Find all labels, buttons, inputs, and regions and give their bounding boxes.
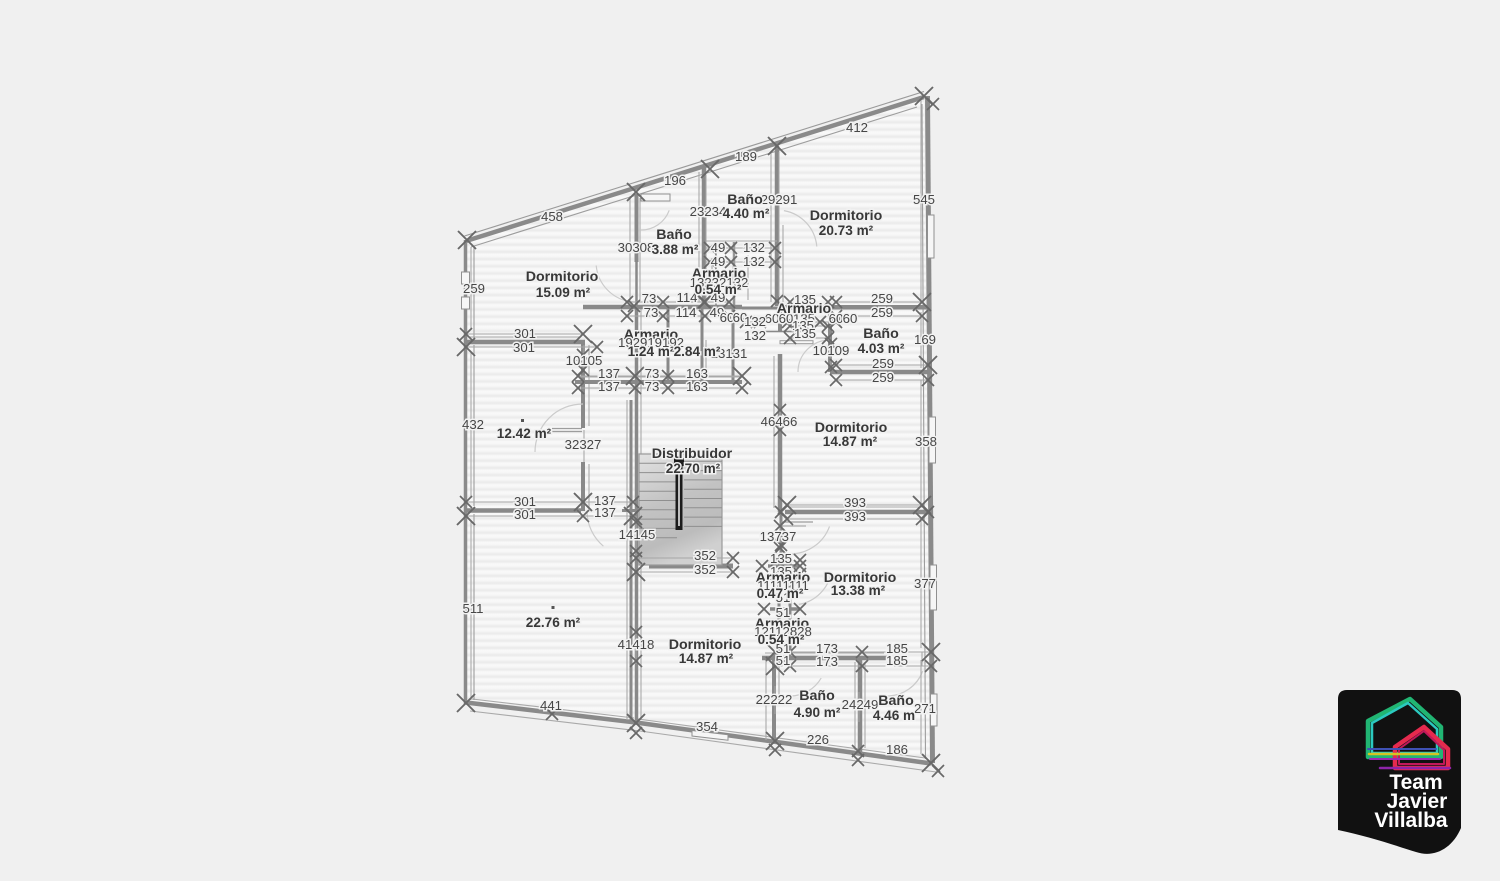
- svg-text:4.46 m: 4.46 m: [873, 708, 915, 723]
- svg-text:226: 226: [807, 732, 829, 747]
- svg-text:259: 259: [871, 305, 893, 320]
- svg-text:511: 511: [462, 601, 483, 616]
- svg-text:Baño: Baño: [863, 326, 899, 342]
- svg-text:259: 259: [872, 356, 894, 371]
- svg-text:354: 354: [696, 719, 718, 734]
- svg-text:352: 352: [694, 562, 716, 577]
- svg-text:432: 432: [462, 417, 484, 432]
- svg-text:458: 458: [541, 209, 563, 224]
- svg-text:22.70 m²: 22.70 m²: [666, 461, 721, 476]
- svg-text:132: 132: [744, 314, 766, 329]
- svg-text:Baño: Baño: [799, 688, 835, 704]
- svg-text:137: 137: [598, 379, 620, 394]
- svg-text:10109: 10109: [813, 343, 850, 358]
- svg-text:393: 393: [844, 495, 866, 510]
- svg-text:2.84 m²: 2.84 m²: [674, 344, 721, 359]
- svg-text:Baño: Baño: [878, 693, 914, 709]
- svg-text:73: 73: [644, 305, 659, 320]
- svg-text:132: 132: [744, 328, 766, 343]
- svg-text:22.76 m²: 22.76 m²: [526, 615, 581, 630]
- svg-text:393: 393: [844, 509, 866, 524]
- svg-text:185: 185: [886, 653, 908, 668]
- svg-text:41418: 41418: [618, 637, 655, 652]
- svg-text:358: 358: [915, 434, 937, 449]
- svg-text:132: 132: [743, 240, 765, 255]
- svg-text:271: 271: [914, 701, 936, 716]
- svg-text:132: 132: [743, 254, 765, 269]
- svg-text:196: 196: [664, 173, 686, 188]
- svg-text:163: 163: [686, 379, 708, 394]
- svg-text:352: 352: [694, 548, 716, 563]
- svg-text:46466: 46466: [761, 414, 798, 429]
- svg-text:377: 377: [914, 576, 936, 591]
- svg-text:259: 259: [872, 370, 894, 385]
- svg-text:73: 73: [642, 291, 657, 306]
- svg-text:Armario: Armario: [777, 301, 832, 317]
- svg-text:412: 412: [846, 120, 868, 135]
- svg-text:Dormitorio: Dormitorio: [810, 208, 883, 224]
- svg-text:14.87 m²: 14.87 m²: [679, 651, 734, 666]
- svg-text:259: 259: [463, 281, 485, 296]
- svg-text:135: 135: [794, 326, 816, 341]
- svg-text:73: 73: [645, 379, 660, 394]
- svg-text:0.47 m²: 0.47 m²: [757, 586, 804, 601]
- svg-text:169: 169: [914, 332, 936, 347]
- svg-text:137: 137: [594, 505, 616, 520]
- svg-text:30308: 30308: [618, 240, 655, 255]
- svg-text:173: 173: [816, 654, 838, 669]
- svg-text:51: 51: [776, 653, 791, 668]
- svg-text:3.88 m²: 3.88 m²: [652, 242, 699, 257]
- svg-text:14.87 m²: 14.87 m²: [823, 434, 878, 449]
- svg-text:Distribuidor: Distribuidor: [652, 446, 733, 462]
- svg-text:Baño: Baño: [656, 227, 692, 243]
- svg-text:32327: 32327: [565, 437, 602, 452]
- svg-text:4.90 m²: 4.90 m²: [794, 705, 841, 720]
- svg-text:0.54 m²: 0.54 m²: [758, 632, 805, 647]
- svg-text:189: 189: [735, 149, 757, 164]
- svg-text:114: 114: [675, 305, 696, 320]
- svg-text:49: 49: [711, 240, 726, 255]
- svg-text:301: 301: [514, 326, 536, 341]
- svg-text:259: 259: [871, 291, 893, 306]
- svg-text:22222: 22222: [756, 692, 793, 707]
- svg-text:301: 301: [514, 507, 536, 522]
- svg-text:20.73 m²: 20.73 m²: [819, 223, 874, 238]
- svg-text:545: 545: [913, 192, 935, 207]
- svg-text:301: 301: [513, 340, 535, 355]
- svg-text:Villalba: Villalba: [1374, 809, 1447, 832]
- svg-text:29291: 29291: [761, 192, 798, 207]
- svg-text:186: 186: [886, 742, 908, 757]
- svg-text:Dormitorio: Dormitorio: [526, 269, 599, 285]
- svg-text:1.24 m²: 1.24 m²: [628, 344, 675, 359]
- svg-text:0.54 m²: 0.54 m²: [695, 282, 742, 297]
- svg-text:14145: 14145: [619, 527, 656, 542]
- svg-text:15.09 m²: 15.09 m²: [536, 285, 591, 300]
- svg-text:13.38 m²: 13.38 m²: [831, 583, 886, 598]
- svg-text:23234: 23234: [690, 204, 727, 219]
- svg-text:4.40 m²: 4.40 m²: [723, 206, 770, 221]
- svg-text:4.03 m²: 4.03 m²: [858, 341, 905, 356]
- svg-text:60: 60: [843, 311, 858, 326]
- svg-text:12.42 m²: 12.42 m²: [497, 426, 552, 441]
- svg-text:441: 441: [540, 698, 562, 713]
- svg-text:13737: 13737: [760, 529, 797, 544]
- svg-text:10105: 10105: [566, 353, 603, 368]
